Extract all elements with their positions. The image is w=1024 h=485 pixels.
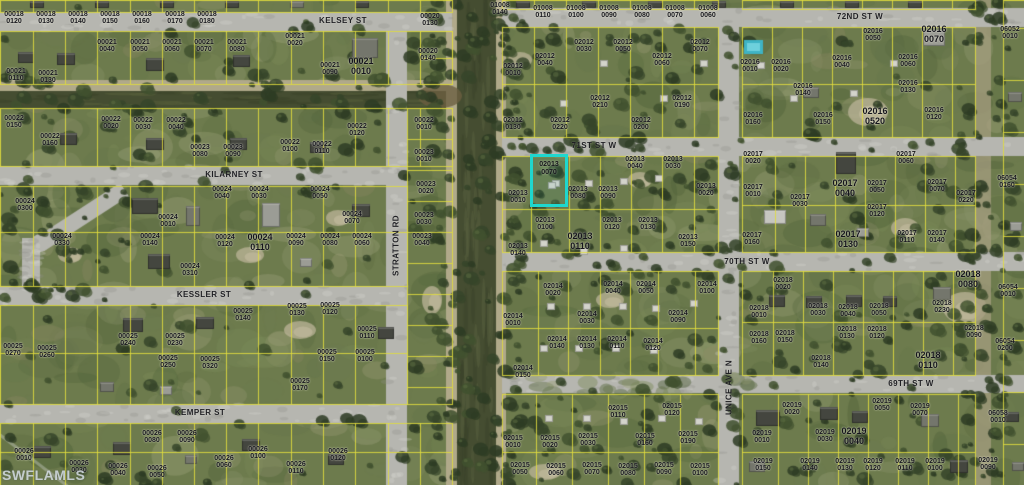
aerial-parcel-map: 00018 012000018 013000018 014000018 0150… (0, 0, 1024, 485)
highlighted-parcel-label: 02013 0070 (534, 161, 564, 176)
highlighted-parcel: 02013 0070 (530, 154, 568, 207)
aerial-basemap (0, 0, 1024, 485)
mls-watermark: SWFLAMLS (2, 467, 85, 483)
